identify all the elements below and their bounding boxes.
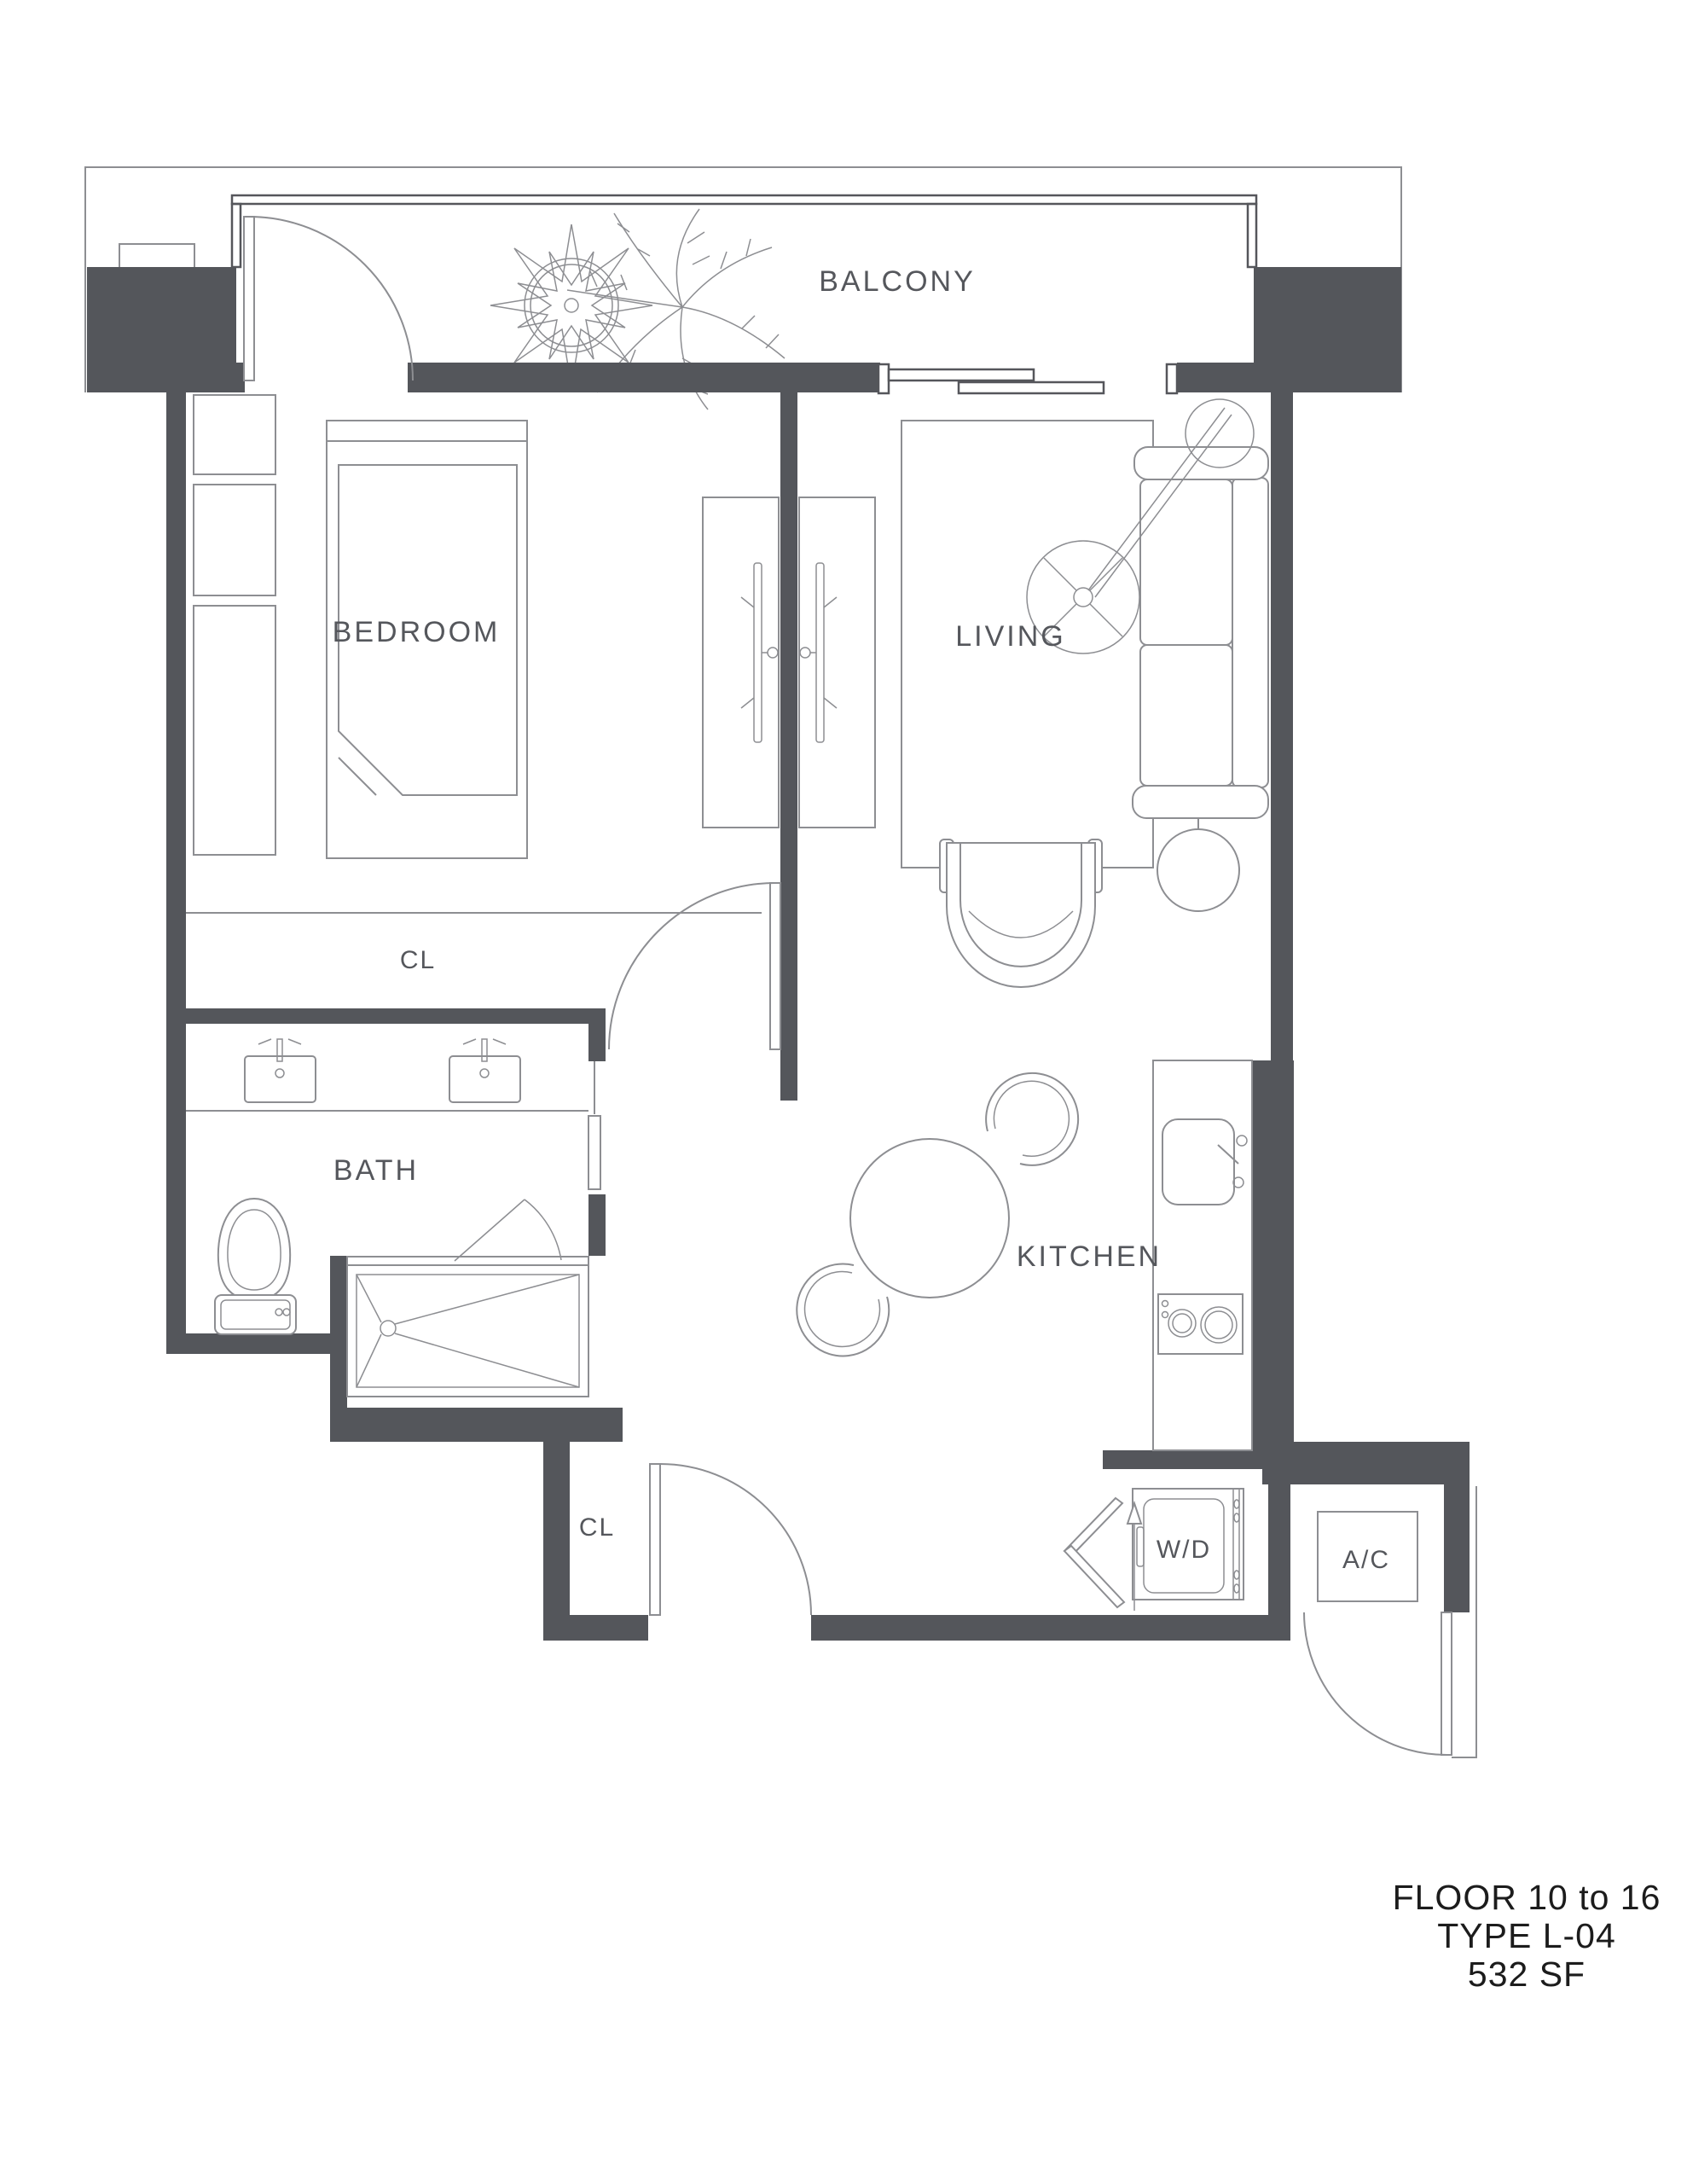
- dining-set: [797, 1073, 1078, 1356]
- plant-star-leaf: [490, 224, 652, 386]
- floorplan-drawing: BALCONY BEDROOM LIVING CL BATH KITCHEN C…: [0, 0, 1687, 2184]
- dining-table: [850, 1139, 1009, 1298]
- bedroom-closet-label: CL: [400, 946, 436, 974]
- cooktop: [1158, 1294, 1243, 1354]
- tv-unit-living: [799, 497, 875, 828]
- side-table: [1157, 818, 1239, 911]
- title-area: 532 SF: [1468, 1955, 1586, 1994]
- kitchen-label: KITCHEN: [1017, 1240, 1162, 1273]
- title-block: FLOOR 10 to 16 TYPE L-04 532 SF: [1393, 1878, 1661, 1994]
- balcony-label: BALCONY: [819, 265, 976, 298]
- wd-bifold-door: [1064, 1498, 1141, 1611]
- bath-label: BATH: [333, 1154, 419, 1187]
- toilet: [215, 1199, 296, 1334]
- washer-dryer-label: W/D: [1157, 1536, 1211, 1564]
- sofa: [1133, 447, 1268, 818]
- tv-unit-bedroom: [703, 497, 779, 828]
- balcony-outline: [85, 167, 1401, 392]
- ac-label: A/C: [1342, 1546, 1390, 1574]
- balcony-railing: [232, 195, 1256, 267]
- dining-chair: [797, 1263, 889, 1356]
- accent-chair: [940, 839, 1102, 987]
- bedroom-cabinets: [194, 395, 275, 855]
- bedroom-balcony-door: [244, 217, 413, 380]
- dining-chair: [986, 1073, 1078, 1165]
- living-label: LIVING: [955, 620, 1065, 653]
- bath-pocket-door: [588, 1061, 600, 1189]
- entry-door: [650, 1464, 811, 1615]
- bedroom-label: BEDROOM: [333, 616, 501, 648]
- bedroom-hall-door: [609, 883, 780, 1049]
- floorplan-page: BALCONY BEDROOM LIVING CL BATH KITCHEN C…: [0, 0, 1687, 2184]
- entry-closet-label: CL: [579, 1513, 615, 1542]
- shower: [347, 1199, 588, 1397]
- kitchen-counter: [1153, 1060, 1252, 1450]
- title-type: TYPE L-04: [1437, 1916, 1616, 1955]
- living-balcony-sliding-door: [878, 364, 1177, 393]
- kitchen-sink: [1162, 1119, 1234, 1205]
- title-floor: FLOOR 10 to 16: [1393, 1878, 1661, 1917]
- bath-vanity: [186, 1039, 588, 1111]
